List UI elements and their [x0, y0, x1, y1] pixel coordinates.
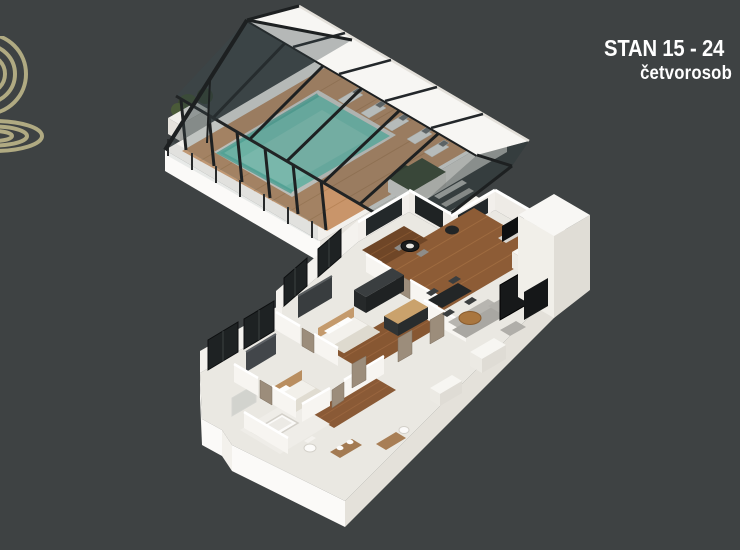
apartment-subtitle: četvorosob [640, 63, 732, 85]
brand-logo [0, 36, 70, 176]
apartment-title: STAN 15 - 24 [604, 36, 732, 60]
apartment-cutaway [200, 190, 590, 527]
page-background: { "page": { "width": 740, "height": 550,… [0, 0, 740, 550]
apartment-label: STAN 15 - 24 četvorosob [604, 36, 732, 85]
elevator-volume [518, 194, 590, 320]
